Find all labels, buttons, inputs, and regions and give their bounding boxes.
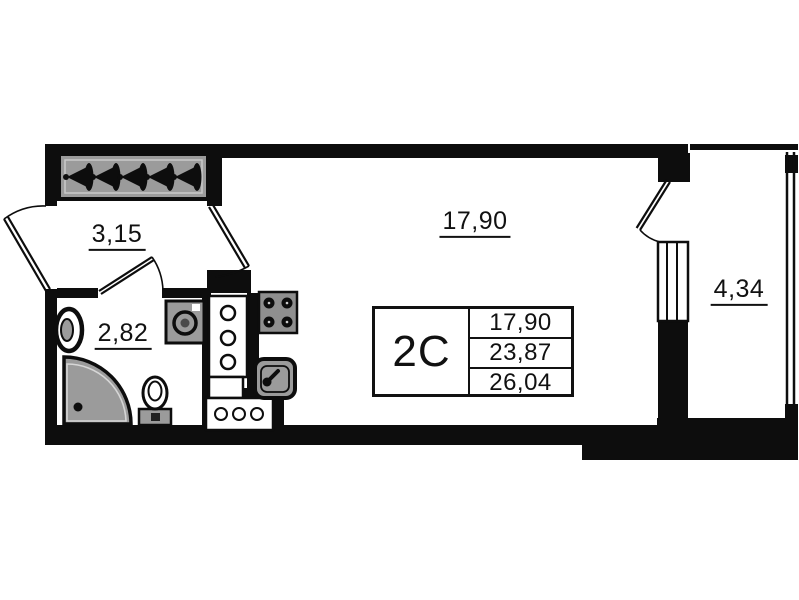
toilet: [139, 377, 171, 425]
balcony-door: [637, 180, 670, 242]
unit-area-total-no-balcony: 23,87: [470, 337, 571, 367]
entrance-door: [4, 206, 50, 291]
washing-machine: [166, 301, 204, 343]
kitchen-base-cabinet: [209, 377, 243, 398]
unit-area-total: 26,04: [470, 367, 571, 397]
wall-balcony-doorblock: [658, 153, 690, 182]
balcony-glazing: [787, 152, 794, 404]
wall-kitchen-corner-block: [207, 270, 251, 293]
wall-balcony-lower: [658, 320, 688, 425]
kitchen-sink: [255, 359, 295, 398]
floor-plan-drawing: [0, 0, 799, 600]
kitchen-tall-cabinet: [209, 296, 247, 377]
wall-balcony-top-thin: [690, 144, 798, 150]
unit-area-living: 17,90: [470, 309, 571, 337]
floor-plan-page: 3,15 2,82 17,90 4,34 2C 17,90 23,87 26,0…: [0, 0, 799, 600]
wall-bottom-extension: [582, 443, 798, 460]
wall-corner-bottom-right: [785, 404, 798, 418]
unit-info-table: 2C 17,90 23,87 26,04: [372, 306, 574, 397]
balcony-window: [658, 242, 688, 321]
wall-left-upper: [45, 144, 57, 206]
stove: [259, 292, 297, 333]
shower-tray: [64, 357, 131, 424]
bathroom-door: [99, 257, 163, 294]
wall-left-lower: [45, 289, 57, 445]
unit-type-cell: 2C: [375, 309, 470, 394]
shower-drain: [74, 403, 83, 412]
hallway-area-label: 3,15: [89, 221, 146, 251]
bathroom-sink: [56, 309, 82, 351]
wall-bathroom-top-left: [57, 288, 98, 298]
living-room-area-label: 17,90: [439, 208, 510, 238]
balcony-area-label: 4,34: [711, 276, 768, 306]
unit-areas-column: 17,90 23,87 26,04: [470, 309, 571, 394]
kitchen-counter: [206, 398, 273, 430]
bathroom-area-label: 2,82: [95, 320, 152, 350]
wardrobe: [59, 154, 208, 199]
living-room-door: [209, 205, 249, 277]
wall-bottom-main: [45, 425, 657, 445]
